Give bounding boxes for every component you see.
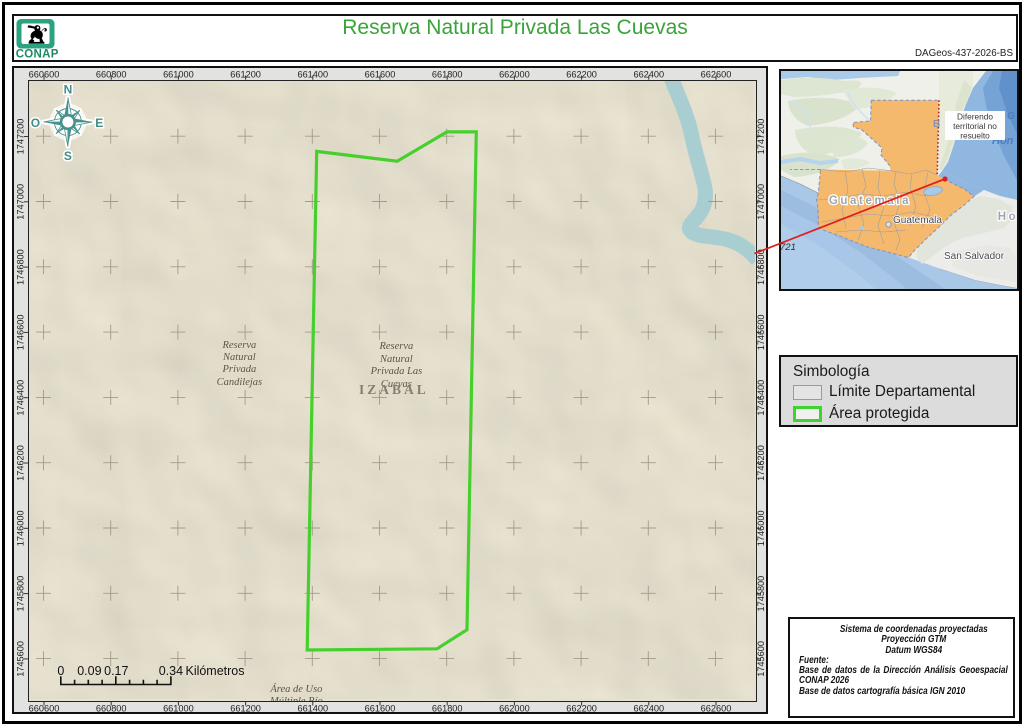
svg-text:S: S <box>64 149 72 163</box>
svg-text:E: E <box>95 116 103 130</box>
svg-text:Guatemala: Guatemala <box>893 215 942 226</box>
svg-text:0.17: 0.17 <box>104 664 128 678</box>
svg-text:0: 0 <box>57 664 64 678</box>
svg-text:territorial no: territorial no <box>953 121 997 131</box>
svg-text:Kilómetros: Kilómetros <box>185 664 244 678</box>
svg-text:G u: G u <box>1007 111 1017 122</box>
svg-text:Guatemala: Guatemala <box>829 195 911 207</box>
svg-text:resuelto: resuelto <box>960 131 990 141</box>
svg-text:0.34: 0.34 <box>159 664 183 678</box>
svg-text:O: O <box>31 116 40 130</box>
svg-text:San Salvador: San Salvador <box>944 251 1005 262</box>
svg-text:0.09: 0.09 <box>77 664 101 678</box>
svg-text:N: N <box>63 82 72 96</box>
svg-text:Ho: Ho <box>998 211 1017 223</box>
svg-text:B: B <box>933 119 940 130</box>
svg-text:Diferendo: Diferendo <box>957 112 993 122</box>
